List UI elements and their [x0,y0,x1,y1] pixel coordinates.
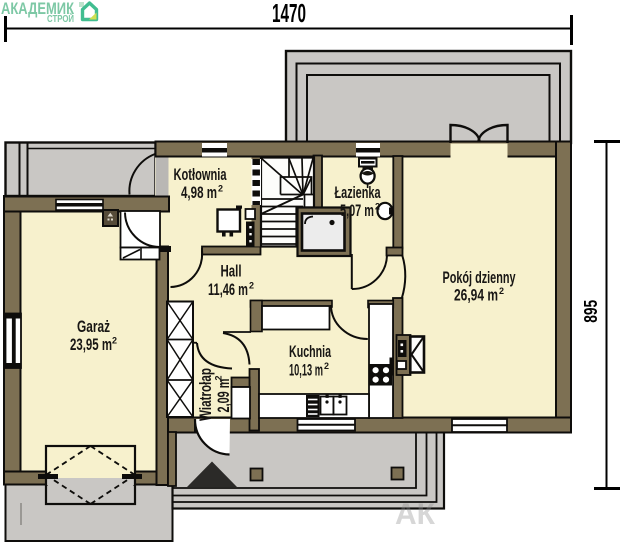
svg-text:Wiatrołap: Wiatrołap [197,368,215,421]
svg-text:АК: АК [395,498,436,531]
svg-text:2: 2 [112,336,117,346]
svg-text:5,07 m: 5,07 m [340,202,374,220]
svg-text:26,94 m: 26,94 m [454,287,498,305]
svg-text:895: 895 [581,300,601,323]
svg-text:2: 2 [324,361,329,371]
svg-text:Garaż: Garaż [77,318,110,336]
svg-text:23,95 m: 23,95 m [70,336,112,354]
svg-text:2: 2 [218,184,223,194]
svg-text:2,09 m: 2,09 m [215,379,233,413]
svg-text:11,46 m: 11,46 m [208,281,248,299]
svg-text:2: 2 [249,281,254,291]
svg-text:СТРОЙ: СТРОЙ [47,12,74,25]
svg-text:Pokój dzienny: Pokój dzienny [443,269,517,287]
svg-text:Kuchnia: Kuchnia [289,343,332,361]
svg-text:10,13 m: 10,13 m [289,362,323,380]
svg-text:Hall: Hall [221,263,242,281]
svg-text:2: 2 [214,375,224,380]
svg-text:2: 2 [499,286,504,296]
svg-text:Kotłownia: Kotłownia [174,166,228,184]
svg-text:2: 2 [375,202,380,212]
svg-text:1470: 1470 [272,0,306,28]
svg-text:Łazienka: Łazienka [335,184,382,202]
svg-text:4,98 m: 4,98 m [181,184,217,202]
